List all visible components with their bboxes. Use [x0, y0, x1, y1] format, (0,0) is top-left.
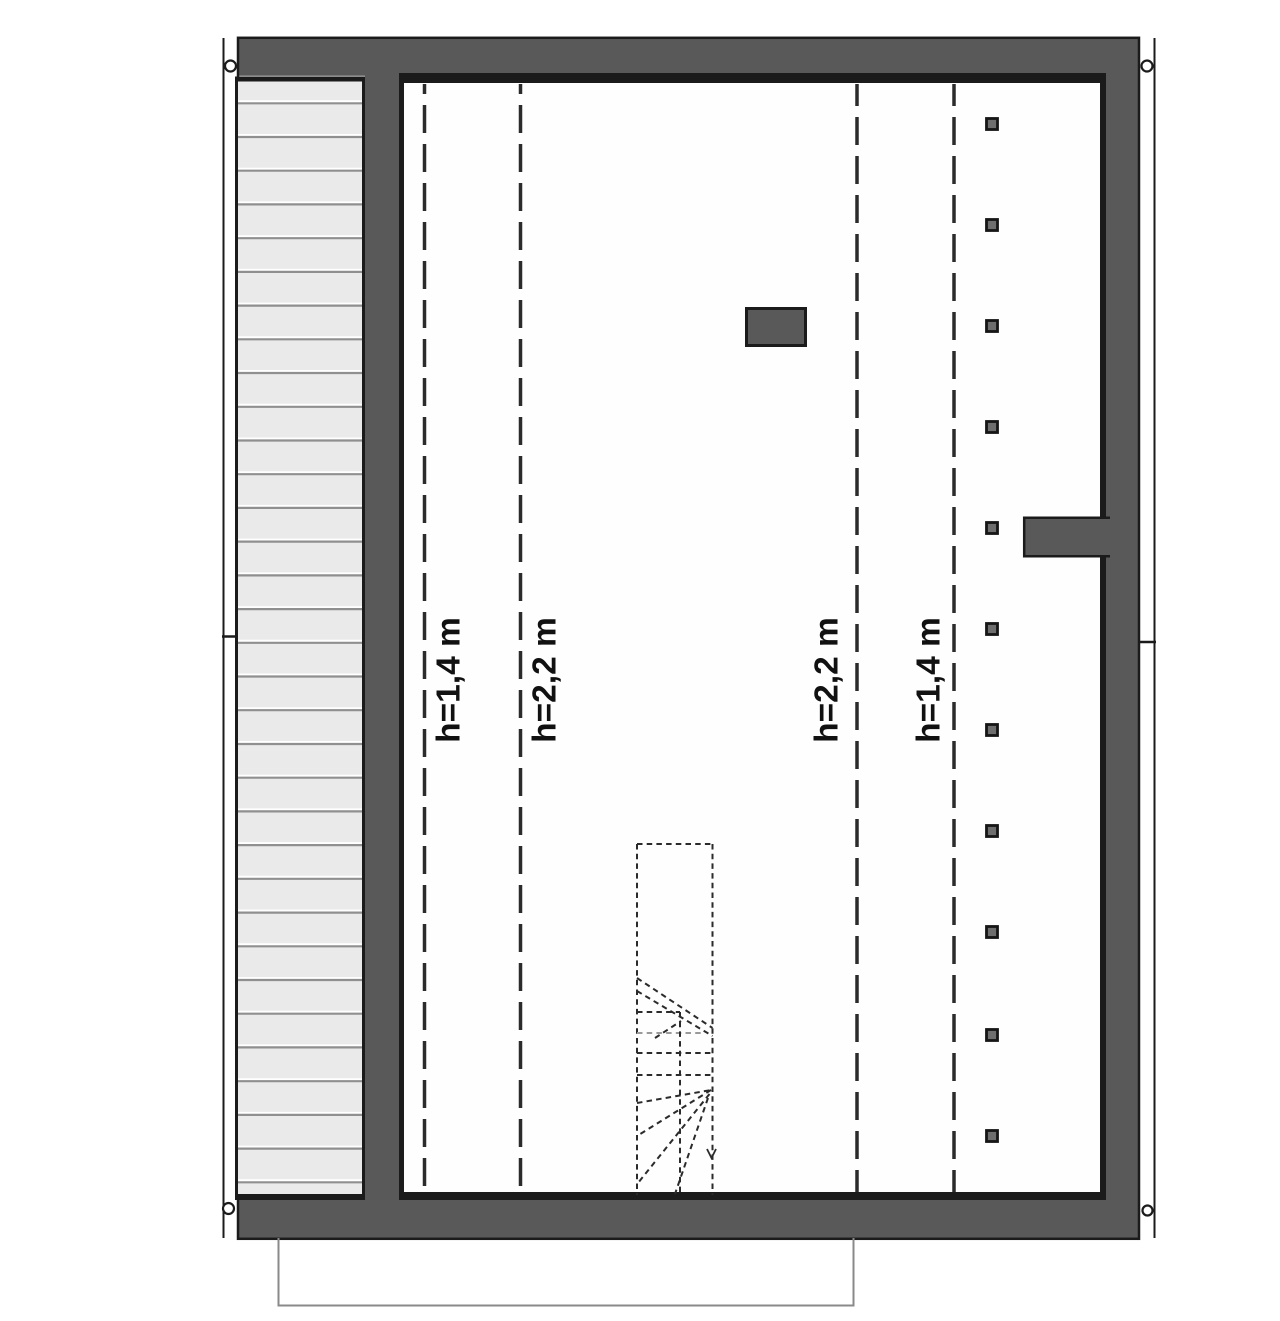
svg-text:h=2,2 m: h=2,2 m	[808, 617, 845, 743]
svg-text:h=1,4 m: h=1,4 m	[910, 617, 947, 743]
svg-text:h=1,4 m: h=1,4 m	[430, 617, 467, 743]
svg-text:h=2,2 m: h=2,2 m	[526, 617, 563, 743]
